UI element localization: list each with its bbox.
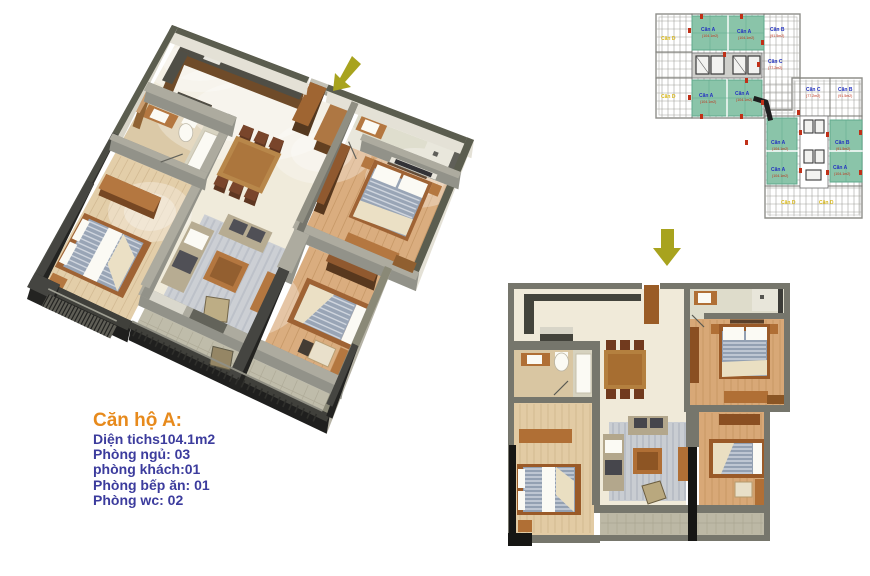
svg-text:Căn A: Căn A bbox=[737, 29, 752, 35]
svg-text:(77.2m2): (77.2m2) bbox=[806, 94, 820, 98]
svg-text:(104.1m2): (104.1m2) bbox=[736, 98, 752, 102]
svg-text:Căn B: Căn B bbox=[835, 140, 850, 146]
svg-text:phòng khách:01: phòng khách:01 bbox=[93, 461, 201, 477]
svg-text:Căn A: Căn A bbox=[701, 27, 716, 33]
svg-text:(104.1m2): (104.1m2) bbox=[772, 147, 788, 151]
svg-text:Căn A: Căn A bbox=[699, 93, 714, 99]
svg-text:(104.1m2): (104.1m2) bbox=[834, 172, 850, 176]
svg-text:(91.5m2): (91.5m2) bbox=[770, 34, 784, 38]
svg-text:Căn C: Căn C bbox=[806, 87, 821, 93]
svg-text:(104.1m2): (104.1m2) bbox=[738, 36, 754, 40]
svg-text:Căn D: Căn D bbox=[781, 200, 796, 206]
svg-text:(91.5m2): (91.5m2) bbox=[836, 147, 850, 151]
svg-text:Căn B: Căn B bbox=[770, 27, 785, 33]
svg-text:Phòng wc: 02: Phòng wc: 02 bbox=[93, 492, 183, 508]
svg-text:Căn D: Căn D bbox=[819, 200, 834, 206]
svg-text:Căn D: Căn D bbox=[661, 36, 676, 42]
svg-text:Căn A: Căn A bbox=[771, 140, 786, 146]
svg-text:Diện tichs104.1m2: Diện tichs104.1m2 bbox=[93, 431, 215, 447]
svg-text:Căn A: Căn A bbox=[833, 165, 848, 171]
svg-text:Phòng ngủ: 03: Phòng ngủ: 03 bbox=[93, 446, 190, 462]
svg-text:Căn C: Căn C bbox=[768, 59, 783, 65]
svg-text:(104.1m2): (104.1m2) bbox=[700, 100, 716, 104]
svg-text:(77.2m2): (77.2m2) bbox=[768, 66, 782, 70]
svg-text:Căn A: Căn A bbox=[771, 167, 786, 173]
svg-text:(91.5m2): (91.5m2) bbox=[838, 94, 852, 98]
svg-text:Phòng bếp ăn: 01: Phòng bếp ăn: 01 bbox=[93, 477, 210, 493]
svg-text:(104.1m2): (104.1m2) bbox=[772, 174, 788, 178]
svg-text:Căn A: Căn A bbox=[735, 91, 750, 97]
svg-text:Căn hộ A:: Căn hộ A: bbox=[93, 410, 182, 431]
svg-text:(104.1m2): (104.1m2) bbox=[702, 34, 718, 38]
svg-text:Căn B: Căn B bbox=[838, 87, 853, 93]
svg-text:Căn D: Căn D bbox=[661, 94, 676, 100]
